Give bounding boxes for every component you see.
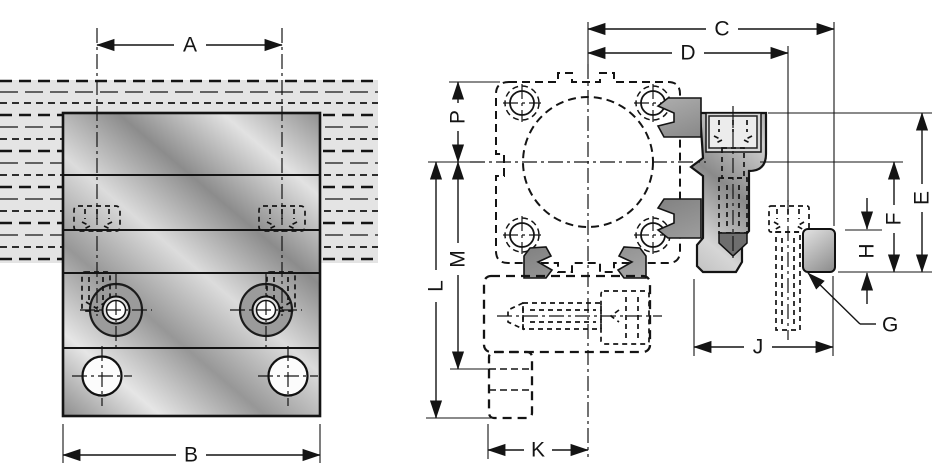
dim-label-g: G <box>882 314 898 337</box>
dimension-B: B <box>63 424 320 467</box>
upper-claw-bottom <box>658 199 701 238</box>
dim-label-k: K <box>531 439 545 462</box>
dim-label-j: J <box>753 336 764 359</box>
nut-block <box>803 229 835 272</box>
dim-label-h: H <box>856 243 879 258</box>
front-view: A B <box>0 28 378 467</box>
dimension-L: L <box>425 162 448 418</box>
lower-bracket-phantom <box>484 276 650 418</box>
dimension-J: J <box>694 336 833 359</box>
dimension-E: E <box>911 113 934 272</box>
dimension-P: P <box>447 82 470 162</box>
dim-label-f: F <box>883 213 906 226</box>
dim-label-p: P <box>447 110 470 124</box>
dim-label-e: E <box>911 191 934 205</box>
dim-label-b: B <box>184 444 198 467</box>
dimension-K: K <box>488 439 588 462</box>
horizontal-screw <box>497 291 662 344</box>
dim-label-d: D <box>680 42 695 65</box>
dimension-F: F <box>883 162 906 272</box>
upper-claw-top <box>658 98 701 137</box>
section-view: C D E F H G <box>425 18 934 462</box>
dimension-M: M <box>447 162 470 369</box>
technical-drawing-page: A B <box>0 0 945 474</box>
dimension-H: H <box>856 198 879 304</box>
dimension-C: C <box>588 18 834 41</box>
dim-label-m: M <box>447 250 470 268</box>
dim-label-c: C <box>714 18 729 41</box>
dim-label-l: L <box>425 280 448 292</box>
dimension-A: A <box>97 34 282 57</box>
leader-G: G <box>808 273 898 337</box>
dimension-drawing: A B <box>0 0 945 474</box>
dim-label-a: A <box>183 34 197 57</box>
dimension-D: D <box>588 42 788 65</box>
